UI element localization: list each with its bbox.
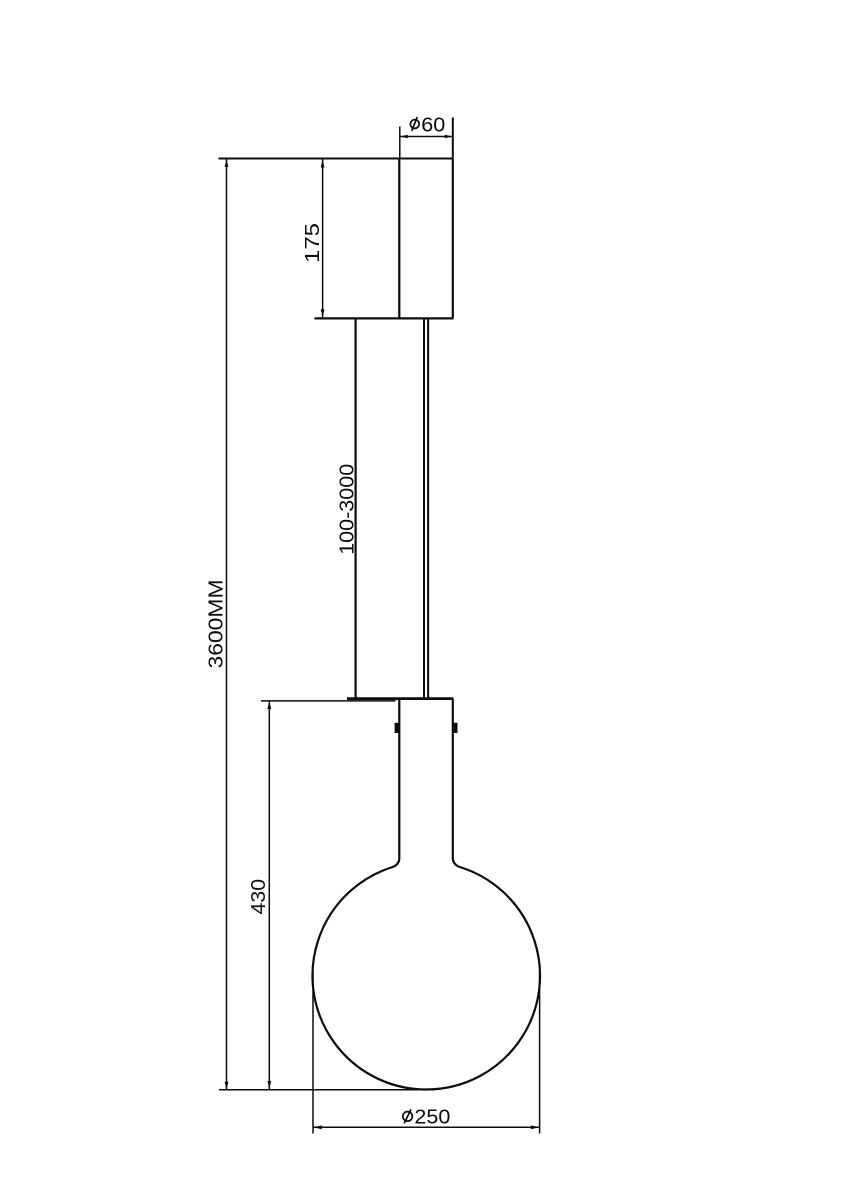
svg-text:3600MM: 3600MM bbox=[205, 580, 228, 669]
svg-text:100-3000: 100-3000 bbox=[336, 464, 359, 555]
svg-text:175: 175 bbox=[301, 223, 324, 263]
svg-text:60: 60 bbox=[421, 114, 445, 137]
svg-text:430: 430 bbox=[247, 879, 270, 915]
svg-text:250: 250 bbox=[414, 1105, 450, 1128]
